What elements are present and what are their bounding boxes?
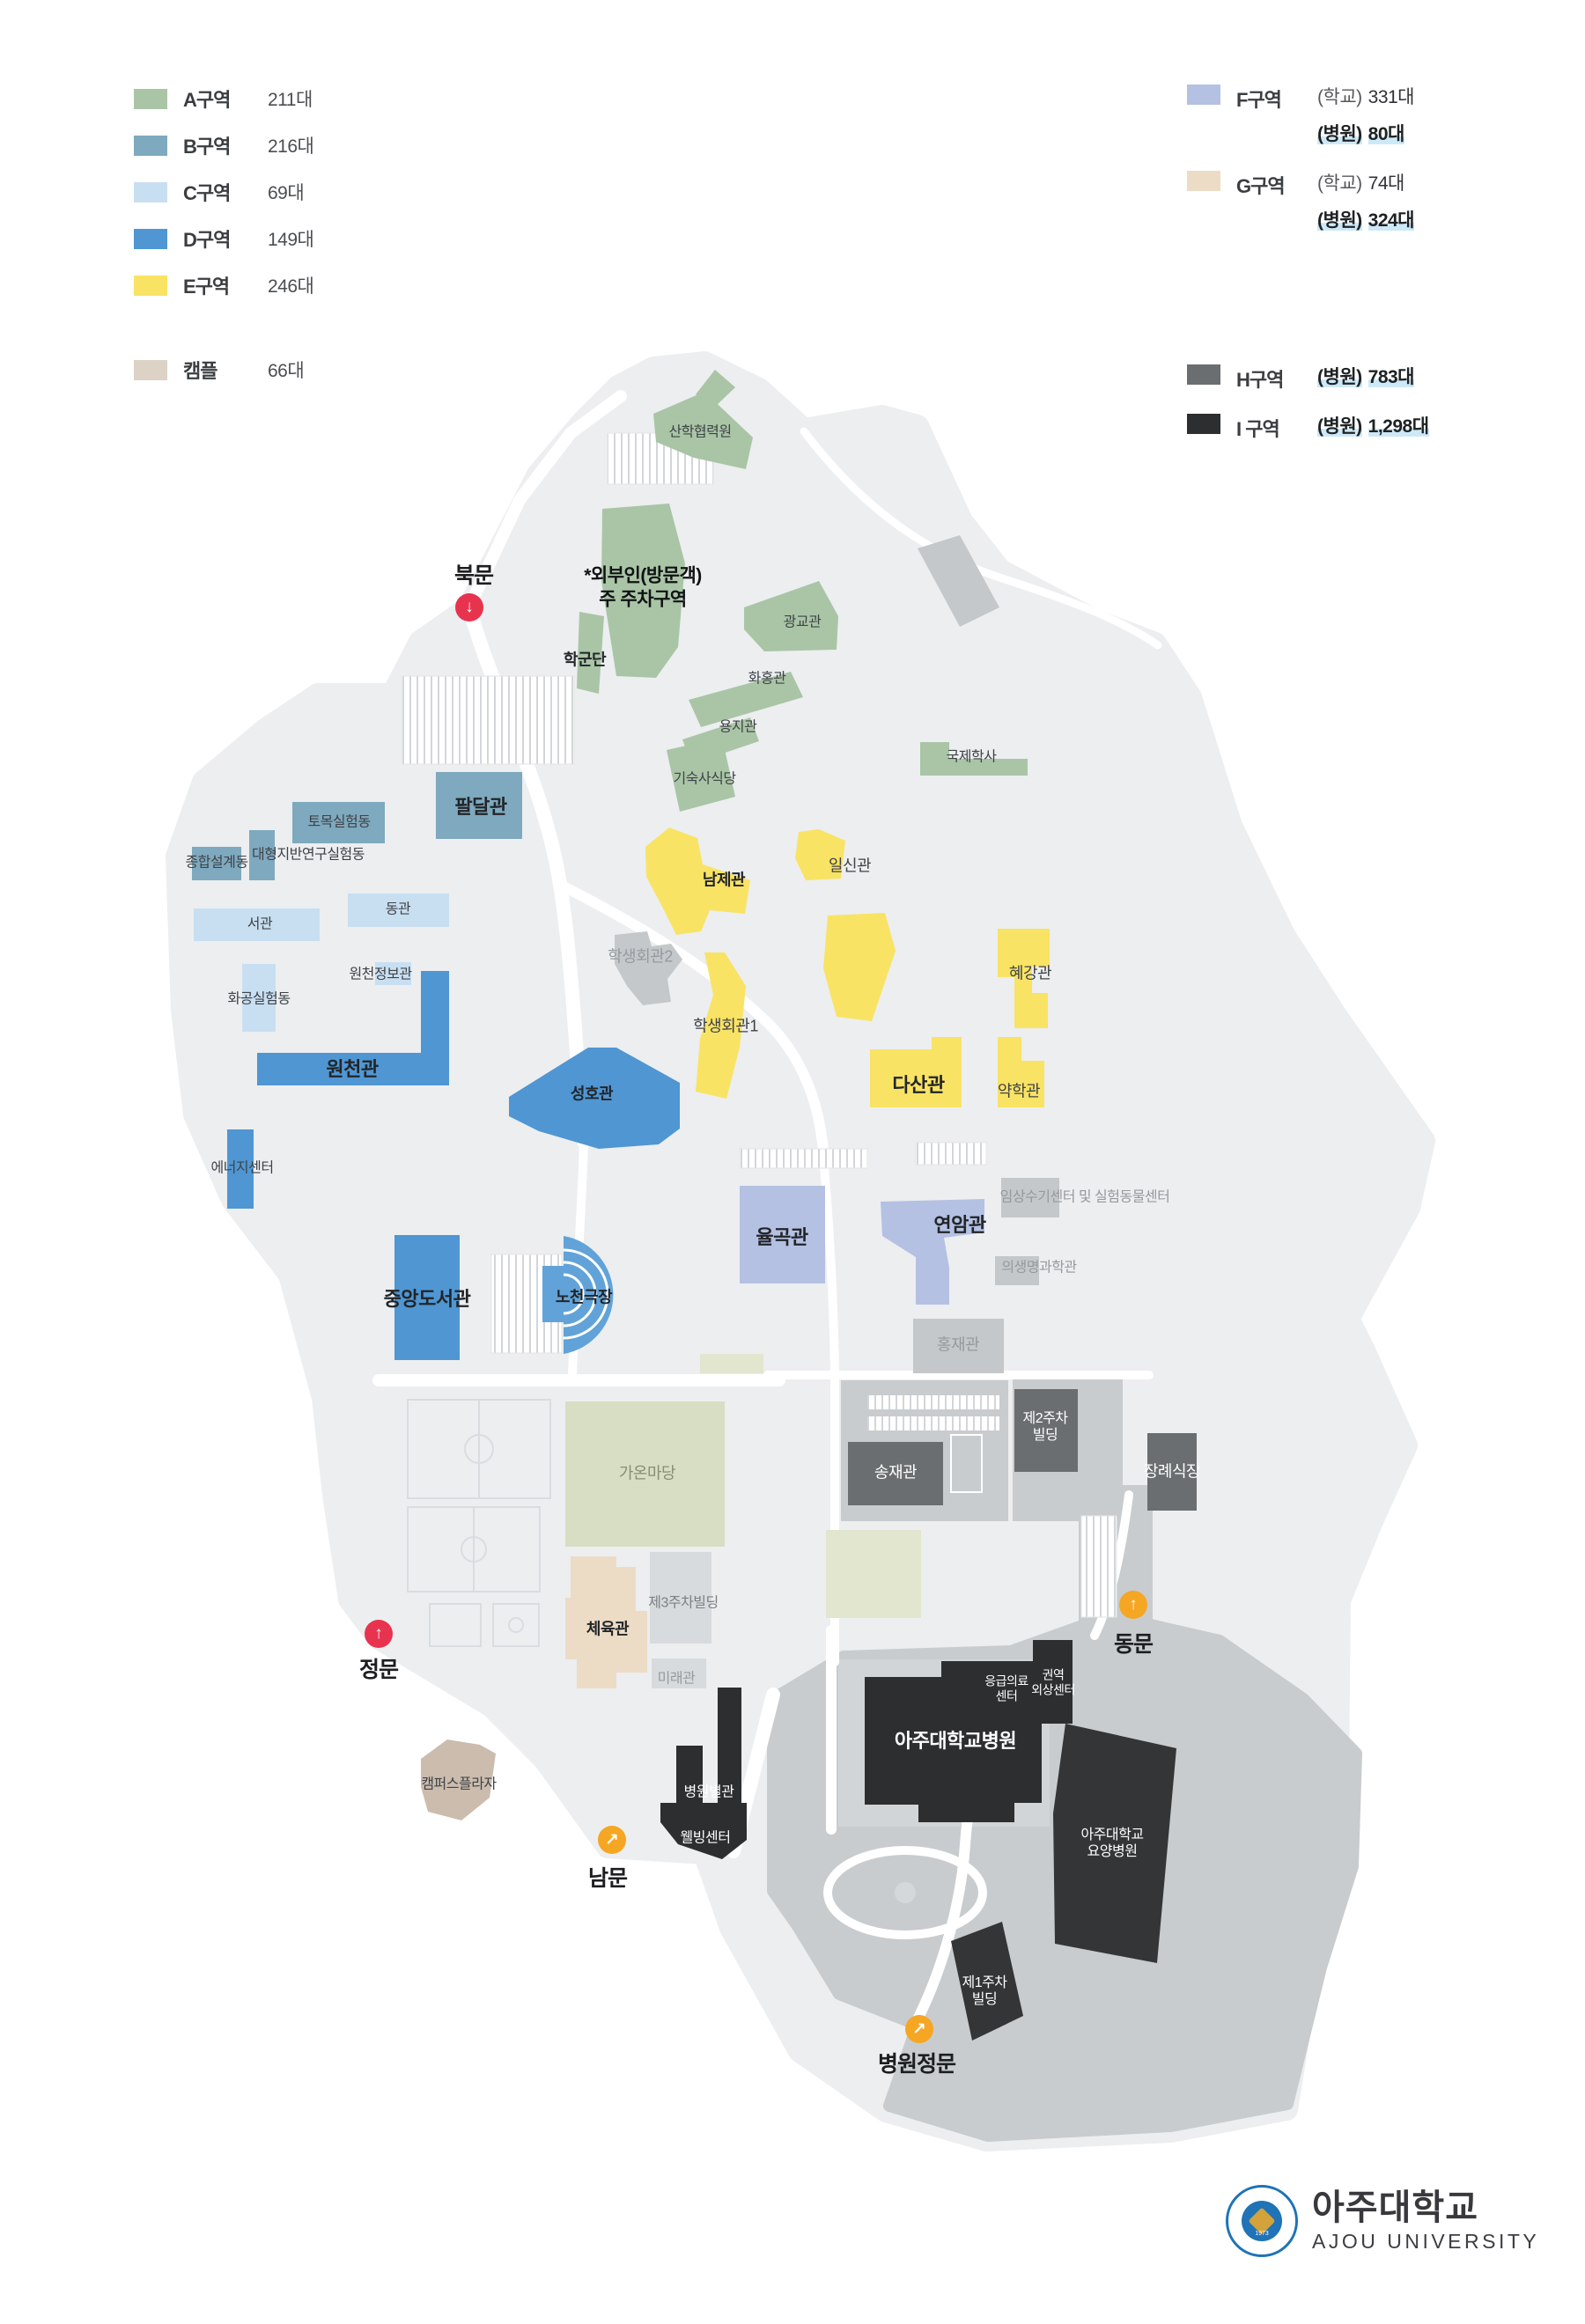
hospital-main-gate-label: 병원정문 [878, 2047, 955, 2078]
legend-line: (병원)324대 [1317, 208, 1414, 233]
legend-swatch-c [134, 182, 167, 202]
map-label: 화공실험동 [227, 992, 290, 1009]
map-label: 산학협력원 [668, 425, 731, 442]
map-label: 체육관 [586, 1620, 629, 1638]
legend-item-g: G구역(학교)74대(병원)324대 [1187, 171, 1414, 245]
hospital-main-gate-marker-icon: ↗ [905, 2015, 933, 2043]
legend-school-hospital-zones: F구역(학교)331대(병원)80대G구역(학교)74대(병원)324대 [1187, 85, 1414, 257]
map-label: 토목실험동 [307, 815, 370, 832]
map-label: 기숙사식당 [673, 772, 735, 789]
map-label: 제3주차빌딩 [648, 1596, 719, 1613]
logo-wordmark: 아주대학교 AJOU UNIVERSITY [1312, 2189, 1539, 2254]
legend-line-value: 74대 [1368, 173, 1404, 194]
map-label: 다산관 [892, 1074, 944, 1097]
map-label: 가온마당 [619, 1464, 675, 1482]
legend-zone-lines: (학교)74대(병원)324대 [1317, 171, 1414, 245]
legend-zone-count: 149대 [268, 225, 313, 252]
legend-zone-count: 69대 [268, 179, 304, 205]
map-label: 원천관 [326, 1058, 378, 1081]
university-seal-icon: 1973 [1226, 2185, 1298, 2257]
legend-zone-label: C구역 [183, 178, 268, 206]
legend-line: (병원)783대 [1317, 364, 1414, 390]
map-label: 중앙도서관 [384, 1288, 471, 1311]
legend-zone-label: D구역 [183, 224, 268, 253]
map-label: 광교관 [784, 615, 822, 632]
legend-swatch-a [134, 89, 167, 109]
campus-parking-map-page: 산학협력원*외부인(방문객) 주 주차구역학군단광교관화홍관용지관기숙사식당국제… [0, 0, 1585, 2324]
north-gate-marker-icon: ↓ [455, 593, 483, 621]
legend-zone-label: 캠플 [183, 356, 268, 384]
map-label: 남제관 [703, 871, 745, 889]
legend-line: (학교)74대 [1317, 171, 1414, 196]
legend-swatch-i [1187, 414, 1220, 434]
map-label: 에너지센터 [210, 1161, 273, 1178]
legend-zone-count: 216대 [268, 132, 313, 158]
legend-line-value: 783대 [1368, 367, 1414, 387]
legend-zone-lines: (병원)783대 [1317, 364, 1414, 401]
map-label: 혜강관 [1009, 964, 1051, 982]
map-label: 동관 [386, 902, 410, 919]
map-label: 약학관 [998, 1082, 1040, 1100]
map-label: 임상수기센터 및 실험동물센터 [1000, 1190, 1170, 1207]
map-label: 웰빙센터 [681, 1831, 731, 1848]
legend-line-value: 324대 [1368, 210, 1414, 231]
legend-item-c: C구역69대 [134, 178, 313, 206]
map-label: 학군단 [564, 651, 606, 669]
legend-line-prefix: (병원) [1317, 210, 1362, 231]
legend-item-d: D구역149대 [134, 224, 313, 253]
legend-hospital-zones: H구역(병원)783대I 구역(병원)1,298대 [1187, 364, 1429, 463]
legend-swatch-campl [134, 360, 167, 380]
legend-line-prefix: (병원) [1317, 367, 1362, 387]
map-label: 병원별관 [684, 1785, 734, 1802]
legend-line-value: 1,298대 [1368, 416, 1429, 437]
legend-line: (병원)1,298대 [1317, 414, 1429, 439]
legend-item-e: E구역246대 [134, 271, 313, 299]
legend-item-b: B구역216대 [134, 131, 313, 159]
map-label: 율곡관 [756, 1226, 807, 1249]
map-label: 종합설계동 [185, 856, 247, 872]
legend-swatch-e [134, 276, 167, 296]
map-label: 권역 외상센터 [1031, 1667, 1075, 1696]
legend-zone-count: 246대 [268, 272, 313, 298]
map-label: 일신관 [829, 857, 871, 875]
legend-line-prefix: (학교) [1317, 173, 1362, 194]
legend-zone-label: E구역 [183, 271, 268, 299]
legend-item-h: H구역(병원)783대 [1187, 364, 1429, 401]
legend-swatch-h [1187, 364, 1220, 385]
map-label: 응급의료 센터 [984, 1673, 1028, 1703]
legend-zone-label: B구역 [183, 131, 268, 159]
main-gate-marker-icon: ↑ [365, 1620, 393, 1648]
map-label: 제2주차 빌딩 [1022, 1411, 1067, 1445]
legend-zone-label: H구역 [1236, 364, 1317, 393]
legend-zone-lines: (학교)331대(병원)80대 [1317, 85, 1414, 158]
logo-korean: 아주대학교 [1312, 2189, 1539, 2226]
legend-zone-label: F구역 [1236, 85, 1317, 113]
map-label: 아주대학교병원 [895, 1730, 1016, 1753]
logo-english: AJOU UNIVERSITY [1312, 2230, 1539, 2254]
map-label: 국제학사 [947, 750, 997, 767]
map-label: 장례식장 [1144, 1462, 1200, 1481]
legend-swatch-g [1187, 171, 1220, 191]
map-label: 송재관 [874, 1463, 917, 1482]
map-label: 용지관 [719, 720, 757, 737]
legend-line: (학교)331대 [1317, 85, 1414, 110]
map-label: 미래관 [658, 1672, 696, 1688]
legend-item-a: A구역211대 [134, 85, 313, 113]
legend-campl: 캠플66대 [134, 356, 304, 402]
map-label: 성호관 [571, 1085, 613, 1103]
map-labels-layer: 산학협력원*외부인(방문객) 주 주차구역학군단광교관화홍관용지관기숙사식당국제… [0, 0, 1585, 2324]
north-gate-label: 북문 [454, 558, 493, 590]
legend-item-campl: 캠플66대 [134, 356, 304, 384]
map-label: 제1주차 빌딩 [962, 1975, 1006, 2009]
university-logo: 1973 아주대학교 AJOU UNIVERSITY [1226, 2185, 1539, 2257]
legend-campus-zones: A구역211대B구역216대C구역69대D구역149대E구역246대 [134, 85, 313, 318]
map-label: 화홍관 [748, 672, 786, 688]
map-label: 학생회관2 [608, 947, 673, 966]
map-label: 의생명과학관 [1001, 1261, 1076, 1277]
legend-line-prefix: (학교) [1317, 87, 1362, 107]
map-label: 연암관 [933, 1214, 985, 1237]
legend-zone-label: I 구역 [1236, 414, 1317, 442]
legend-zone-count: 66대 [268, 357, 304, 383]
map-label: 대형지반연구실험동 [252, 848, 365, 864]
map-label: 캠퍼스플라자 [421, 1777, 496, 1794]
legend-zone-label: A구역 [183, 85, 268, 113]
legend-line-value: 331대 [1368, 87, 1414, 107]
legend-zone-label: G구역 [1236, 171, 1317, 199]
legend-line: (병원)80대 [1317, 121, 1414, 147]
legend-zone-lines: (병원)1,298대 [1317, 414, 1429, 451]
map-label: 노천극장 [556, 1288, 612, 1306]
legend-line-prefix: (병원) [1317, 416, 1362, 437]
east-gate-label: 동문 [1114, 1627, 1153, 1658]
map-label: 팔달관 [454, 796, 506, 819]
seal-year: 1973 [1242, 2231, 1282, 2237]
legend-swatch-f [1187, 85, 1220, 105]
map-label: 원천정보관 [349, 967, 411, 984]
south-gate-marker-icon: ↗ [598, 1826, 626, 1854]
seal-emblem: 1973 [1242, 2201, 1282, 2241]
map-label: *외부인(방문객) 주 주차구역 [584, 564, 702, 613]
legend-line-value: 80대 [1368, 124, 1404, 144]
legend-swatch-d [134, 229, 167, 249]
legend-item-f: F구역(학교)331대(병원)80대 [1187, 85, 1414, 158]
legend-zone-count: 211대 [268, 85, 313, 112]
map-label: 서관 [247, 917, 272, 934]
legend-line-prefix: (병원) [1317, 124, 1362, 144]
legend-swatch-b [134, 136, 167, 156]
legend-item-i: I 구역(병원)1,298대 [1187, 414, 1429, 451]
main-gate-label: 정문 [359, 1652, 398, 1684]
map-label: 홍재관 [937, 1335, 979, 1354]
east-gate-marker-icon: ↑ [1119, 1591, 1147, 1619]
south-gate-label: 남문 [588, 1861, 627, 1893]
map-label: 아주대학교 요양병원 [1080, 1828, 1143, 1861]
map-label: 학생회관1 [693, 1017, 758, 1035]
